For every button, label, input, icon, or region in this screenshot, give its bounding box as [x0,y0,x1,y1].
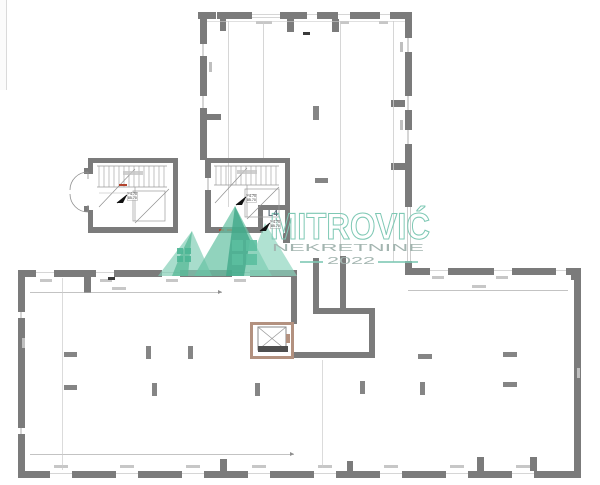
column [503,382,517,387]
dimension-text [186,465,200,468]
plan-shape [123,171,143,175]
wall-segment [18,270,25,312]
wall-segment [405,12,412,38]
plan-shape: 85.70 [128,196,137,200]
construction-line [263,21,264,158]
dimension-text [577,368,580,378]
dimension-line [30,454,294,455]
wall-segment [18,471,50,478]
stair-mark [119,184,127,186]
column [188,346,193,359]
elevation-text: +4.7085.70 [127,192,138,200]
window-sill [314,473,336,474]
wall-segment [114,270,162,277]
dimension-text [54,465,68,468]
wall-segment [405,110,412,130]
plan-shape [246,254,257,265]
watermark: MITROVIĆ NEKRETNINE 2022 [0,0,600,485]
plan-shape: 85.70 [271,224,280,228]
wall-segment [84,277,91,293]
plan-shape [177,248,191,262]
construction-line [407,207,408,263]
column [418,354,432,359]
wall-segment [270,471,314,478]
dimension-text [252,465,266,468]
dimension-text [40,279,52,282]
elevator-shaft [250,322,294,359]
plan-shape [232,240,243,251]
window-sill [407,96,409,110]
wall-segment [54,270,96,277]
dimension-line [30,292,222,293]
column [152,383,157,396]
column [315,178,328,183]
construction-line [300,261,323,263]
window-sill [380,473,402,474]
column [146,346,151,359]
wall-segment [350,12,380,19]
wall-segment [477,457,484,471]
dimension-text [209,62,212,72]
plan-shape: MITROVIĆ [270,205,430,247]
watermark-subtitle: NEKRETNINE [270,240,430,254]
window-sill [96,272,114,273]
column [360,381,365,394]
dimension-line [408,290,568,291]
plan-shape [177,256,183,262]
window-sill [182,473,204,474]
window-sill [202,44,204,56]
dimension-text [112,287,126,290]
wall-segment [18,318,25,428]
wall-segment [347,461,353,471]
plan-shape [246,240,257,251]
stair-mark [219,229,224,231]
floor-plan: +4.7085.70 [0,0,600,485]
wall-segment [200,12,207,44]
elevation-marker-left: +4.7085.70 [116,194,128,204]
wall-segment [200,108,207,160]
dimension-text [400,42,403,52]
window-sill [207,178,209,190]
wall-segment [72,471,116,478]
wall-segment [138,471,182,478]
plan-shape [70,172,88,190]
plan-shape: 85.70 [247,198,256,202]
wall-segment [340,256,346,313]
wall-segment [250,270,297,277]
window-sill [116,473,138,474]
wall-segment [180,270,232,277]
wall-segment [405,52,412,96]
wall-segment [448,268,494,275]
window-sill [380,14,390,15]
plan-shape [135,189,169,223]
wall-segment [280,12,307,19]
wall-segment [405,268,430,275]
construction-line [378,261,418,263]
plan-shape: NEKRETNINE [272,243,425,254]
plan-shape [237,170,257,174]
window-sill [307,14,317,15]
stair-mark [227,229,232,231]
elevation-marker-landing: +4.7085.70 [259,222,271,232]
dimension-text [384,465,398,468]
window-sill [430,270,448,271]
dimension-text [318,465,332,468]
wall-segment [313,258,319,313]
wall-segment [468,471,512,478]
plan-shape [232,240,257,265]
plan-shape [232,254,243,265]
column [64,352,77,357]
wall-segment [402,471,446,478]
watermark-year: 2022 [324,253,380,267]
wall-segment [283,233,290,243]
dimension-arrow [218,290,222,294]
elevation-marker-right: +4.7085.70 [235,196,247,206]
window-sill [20,428,22,434]
wall-segment [369,308,375,358]
dimension-text [432,276,444,279]
dimension-text [234,279,246,282]
elevator-car-icon [253,325,291,356]
plan-shape [99,166,164,187]
plan-shape: 2022 [327,256,376,267]
dimension-text [496,276,508,279]
window-sill [512,473,534,474]
door-swing-icon [69,171,90,213]
wall-segment [313,308,375,314]
window-sill [446,473,468,474]
wall-segment [285,158,290,237]
dimension-arrow [290,452,294,456]
column [64,385,77,390]
construction-line [393,21,394,262]
plan-shape [185,256,191,262]
wall-segment [217,12,252,19]
scan-edge-artifact [0,0,7,90]
plan-shape [258,346,288,352]
wall-segment [291,352,375,358]
window-sill [407,38,409,52]
window-sill [407,130,409,144]
window-sill [248,473,270,474]
window-sill [36,272,54,273]
wall-segment [220,459,227,471]
wall-segment [207,114,221,120]
window-sill [338,14,350,15]
dimension-text [472,285,486,288]
wall-segment [204,471,248,478]
wall-segment [336,471,380,478]
construction-line [410,207,411,263]
window-sill [232,272,250,273]
level-label: L4 [268,209,278,218]
construction-line [322,360,323,468]
construction-line [340,21,341,257]
window-sill [20,312,22,318]
elevation-text: +4.7085.70 [246,194,257,202]
dimension-text [450,465,464,468]
wall-segment [317,12,338,19]
window-sill [252,17,280,18]
dimension-text [22,338,25,348]
dimension-text [516,465,530,468]
wall-segment [530,457,537,471]
wall-segment [173,158,178,233]
construction-line [62,278,63,470]
elevation-text: +4.7085.70 [270,220,281,228]
window-sill [50,473,72,474]
construction-line [207,21,405,22]
wall-segment [303,32,310,35]
column [503,352,517,357]
watermark-title: MITROVIĆ [267,200,439,248]
wall-segment [88,227,178,233]
wall-segment [200,56,207,96]
plan-shape [70,194,88,212]
window-sill [494,270,512,271]
wall-segment [205,227,263,233]
dimension-text [400,120,403,130]
column [255,383,260,396]
window-sill [556,270,566,271]
window-sill [202,96,204,108]
wall-segment [405,144,412,207]
dimension-text [120,465,134,468]
wall-segment [291,272,297,324]
wall-segment [108,277,115,280]
plan-shape [177,248,183,254]
plan-shape [286,334,290,343]
plan-shape [185,248,191,254]
wall-segment [534,471,581,478]
column [313,106,319,120]
window-sill [162,272,180,273]
dimension-text [166,279,178,282]
column [420,382,425,395]
wall-segment [512,268,556,275]
window-sill [252,14,280,15]
